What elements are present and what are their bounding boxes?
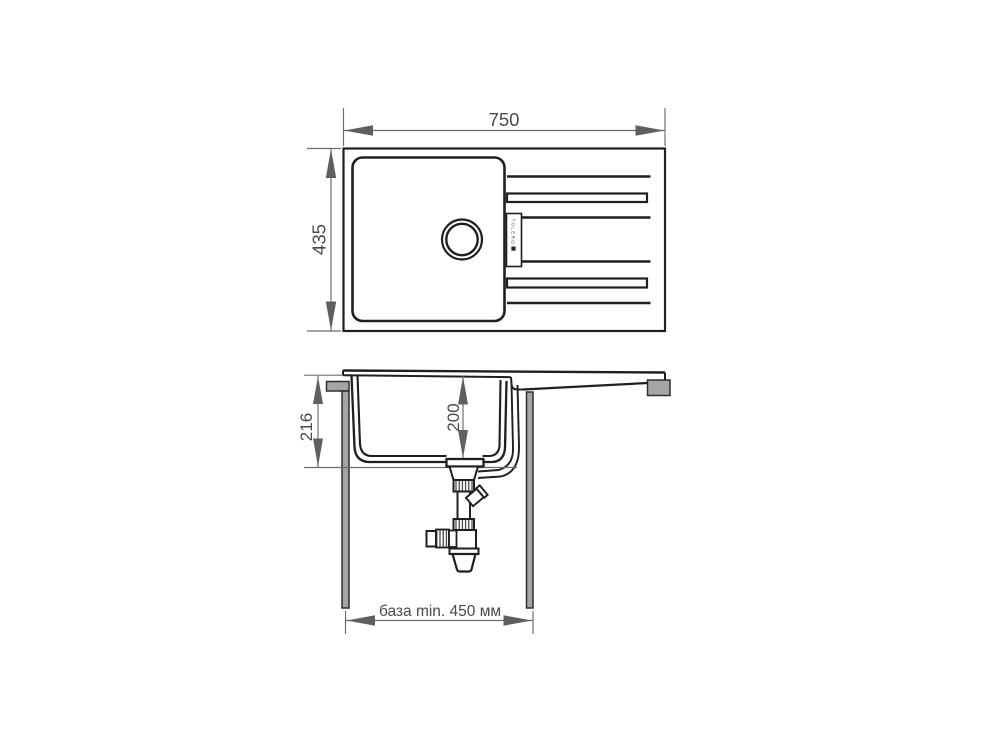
bowl-wall-inner — [358, 375, 501, 456]
siphon-outlet-neck — [449, 531, 457, 548]
drainboard-groove-5 — [507, 279, 647, 288]
sink-section-top — [343, 371, 665, 390]
drainboard-groove-2 — [507, 194, 647, 203]
sink-technical-drawing: TOLERO 750 435 — [0, 0, 1000, 750]
dim-435-arrow-top — [326, 149, 336, 178]
brand-mark-square — [511, 247, 515, 251]
drain-funnel — [450, 467, 479, 481]
coupling-nut-upper — [454, 480, 475, 492]
dimension-bowl-depth-200: 200 — [444, 376, 468, 459]
dimension-width-750: 750 — [344, 108, 666, 146]
cabinet-left-wall — [342, 391, 349, 608]
dim-base-label: база min. 450 мм — [379, 603, 501, 620]
section-view: 216 200 база min. 450 мм — [297, 371, 670, 635]
siphon-outlet-ribs — [436, 530, 449, 548]
drawing-canvas: TOLERO 750 435 — [0, 0, 1000, 750]
drain-flange — [447, 459, 484, 467]
top-view: TOLERO 750 435 — [307, 108, 665, 331]
cabinet-right-wall — [527, 392, 534, 608]
dim-435-arrow-bottom — [326, 302, 336, 331]
dim-base-arrow-left — [347, 615, 376, 625]
coupling-nut-lower — [454, 519, 475, 530]
dim-200-arrow-bottom — [458, 430, 468, 458]
dim-750-arrow-right — [636, 125, 665, 135]
dim-435-label: 435 — [309, 224, 330, 255]
brand-label: TOLERO — [510, 219, 515, 246]
section-top-surface — [343, 371, 665, 373]
section-top-underside-left — [343, 375, 511, 377]
dim-750-arrow-left — [344, 125, 373, 135]
dim-200-label: 200 — [444, 403, 463, 431]
siphon-assembly — [427, 459, 488, 572]
dim-750-label: 750 — [489, 109, 520, 130]
dimension-depth-435: 435 — [307, 149, 341, 332]
bowl-wall-outer — [352, 375, 507, 462]
dim-200-arrow-top — [458, 377, 468, 405]
siphon-body — [456, 530, 476, 549]
dimension-base-min-450: база min. 450 мм — [346, 603, 534, 634]
brand-tab: TOLERO — [507, 214, 522, 267]
siphon-cup — [453, 554, 476, 572]
siphon-outlet-cap — [427, 531, 437, 547]
dim-216-arrow-bottom — [313, 439, 323, 467]
cabinet-left-top-plate — [327, 382, 350, 392]
dim-base-arrow-right — [504, 615, 533, 625]
dim-216-label: 216 — [297, 413, 316, 441]
cabinet-right-support — [648, 380, 671, 396]
dim-216-arrow-top — [313, 377, 323, 405]
drainboard-underside — [523, 383, 648, 390]
